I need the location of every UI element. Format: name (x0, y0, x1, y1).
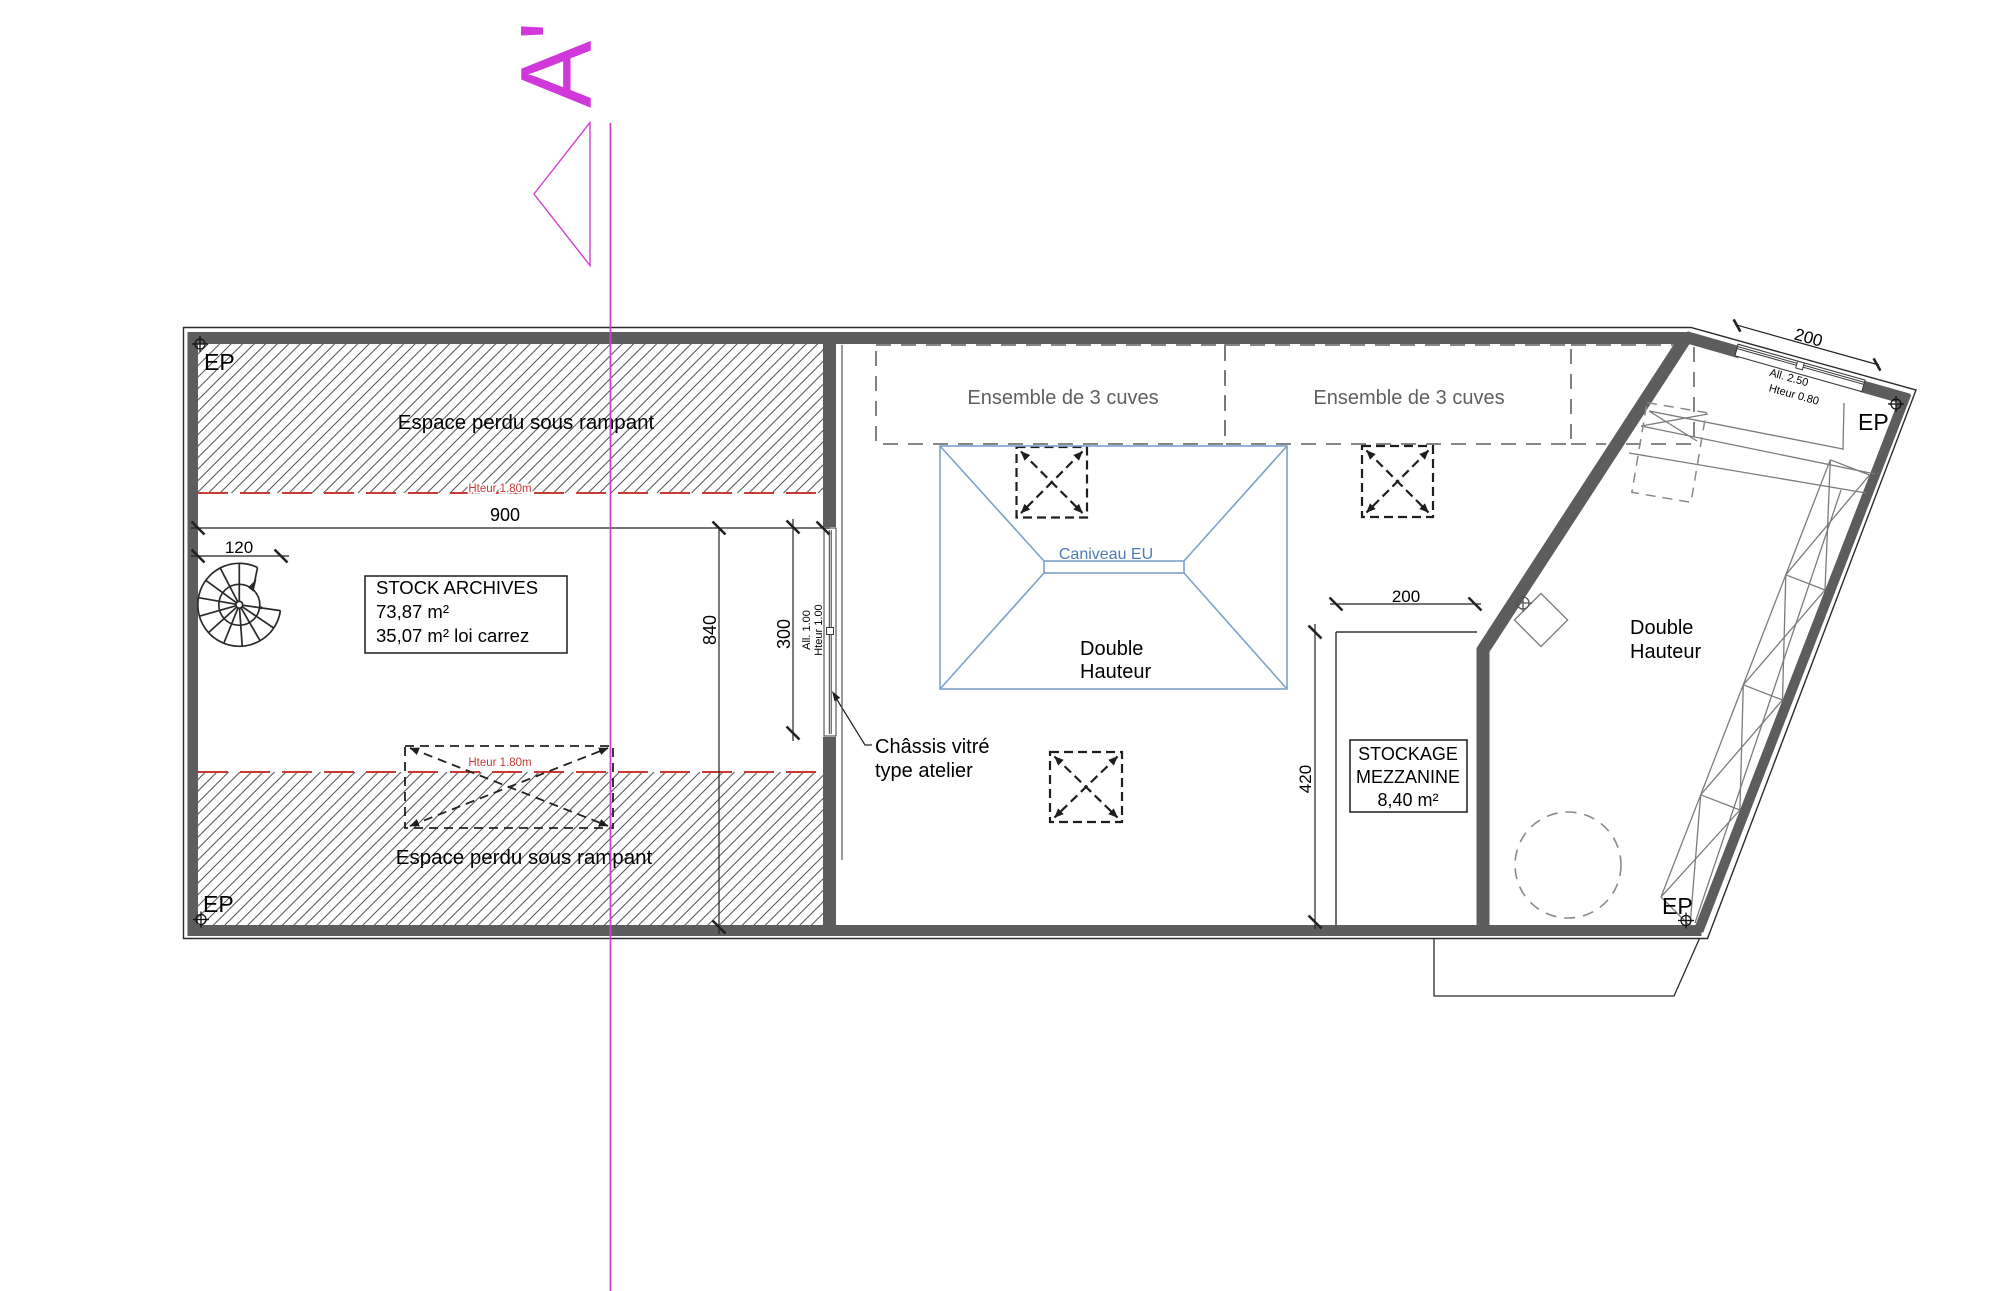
svg-text:200: 200 (1792, 325, 1824, 351)
svg-text:73,87 m²: 73,87 m² (376, 601, 449, 622)
svg-text:EP: EP (1662, 893, 1693, 919)
svg-text:300: 300 (774, 619, 794, 649)
svg-text:840: 840 (700, 615, 720, 645)
svg-text:Ensemble de 3 cuves: Ensemble de 3 cuves (967, 387, 1158, 409)
svg-text:All. 1.00: All. 1.00 (801, 610, 813, 650)
svg-text:A': A' (501, 21, 613, 108)
svg-text:120: 120 (225, 538, 253, 557)
svg-text:Châssis vitré: Châssis vitré (875, 736, 989, 758)
svg-text:Hauteur: Hauteur (1080, 661, 1151, 683)
svg-text:35,07 m² loi carrez: 35,07 m² loi carrez (376, 625, 529, 646)
svg-text:900: 900 (490, 505, 520, 525)
svg-text:STOCKAGE: STOCKAGE (1358, 744, 1458, 764)
svg-text:EP: EP (1858, 409, 1889, 435)
svg-text:Ensemble de 3 cuves: Ensemble de 3 cuves (1313, 387, 1504, 409)
svg-text:420: 420 (1296, 765, 1315, 793)
svg-text:Caniveau EU: Caniveau EU (1059, 546, 1153, 563)
svg-text:STOCK ARCHIVES: STOCK ARCHIVES (376, 577, 538, 598)
svg-text:Double: Double (1080, 638, 1143, 660)
svg-text:EP: EP (203, 891, 234, 917)
svg-text:Hteur 1.00: Hteur 1.00 (813, 604, 825, 655)
svg-text:EP: EP (204, 349, 235, 375)
svg-text:Espace perdu sous rampant: Espace perdu sous rampant (398, 411, 655, 434)
svg-text:type atelier: type atelier (875, 760, 973, 782)
svg-text:MEZZANINE: MEZZANINE (1356, 767, 1460, 787)
svg-text:Hteur 1.80m: Hteur 1.80m (468, 483, 531, 495)
svg-text:Double: Double (1630, 617, 1693, 639)
svg-text:8,40 m²: 8,40 m² (1377, 790, 1438, 810)
svg-text:Hteur 0.80: Hteur 0.80 (1767, 382, 1820, 407)
svg-text:Hteur 1.80m: Hteur 1.80m (468, 757, 531, 769)
svg-text:200: 200 (1392, 587, 1420, 606)
svg-text:Espace perdu sous rampant: Espace perdu sous rampant (396, 846, 653, 869)
svg-text:Hauteur: Hauteur (1630, 641, 1701, 663)
